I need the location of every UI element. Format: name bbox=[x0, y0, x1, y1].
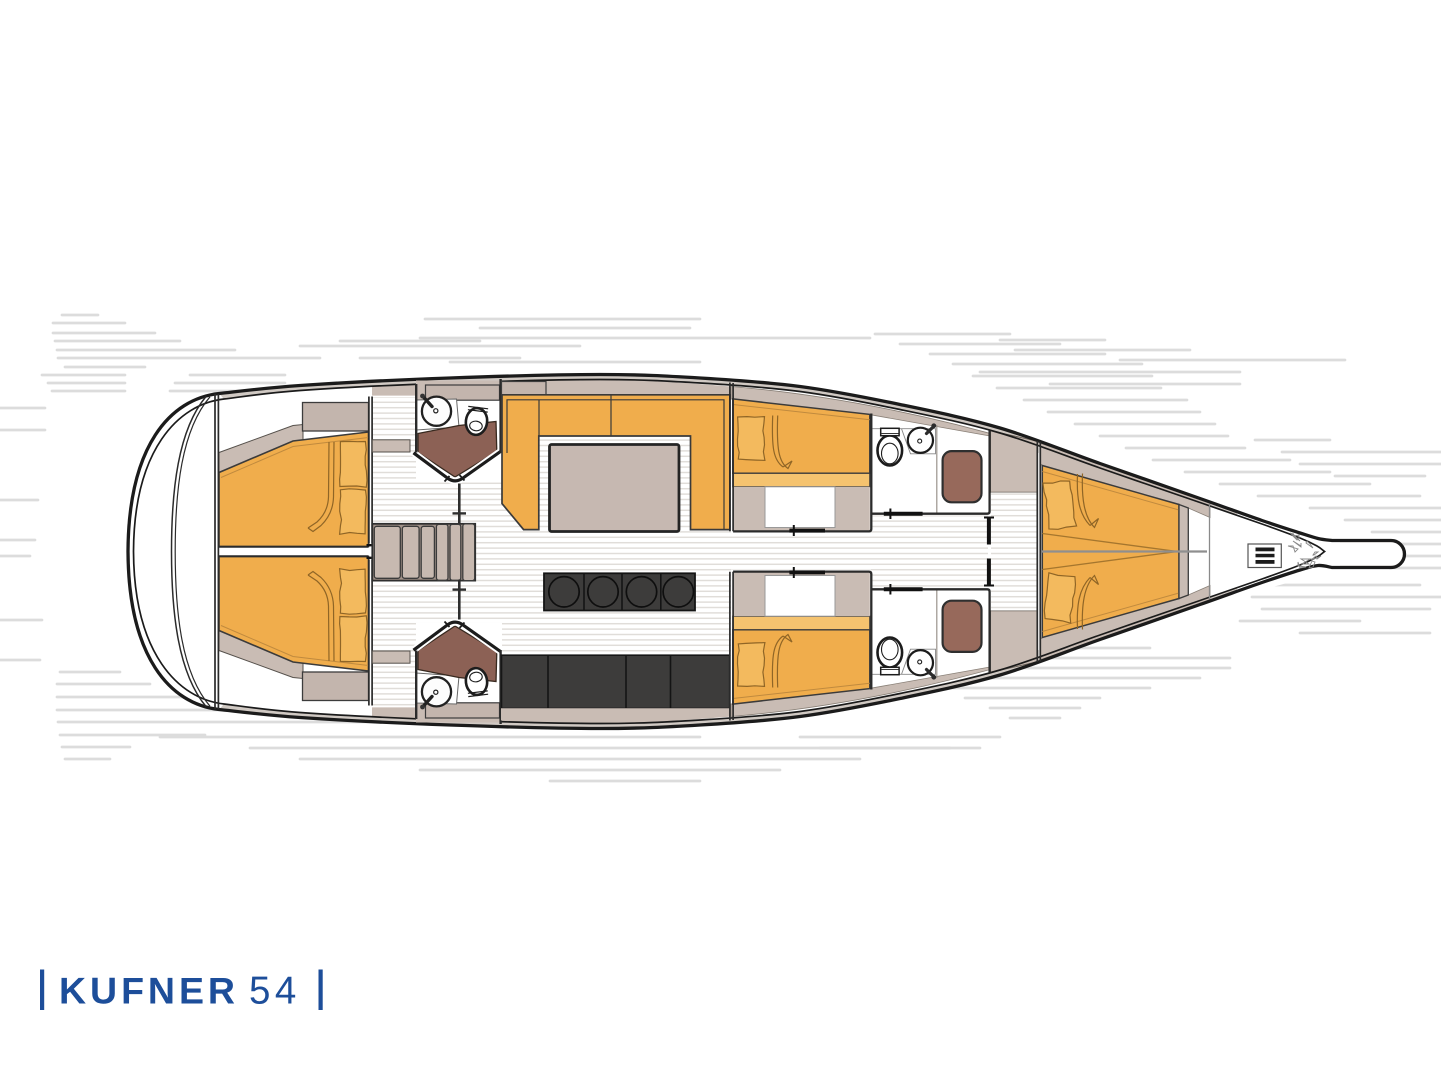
svg-text:KUFNER: KUFNER bbox=[59, 970, 236, 1012]
svg-text:54: 54 bbox=[249, 970, 301, 1013]
